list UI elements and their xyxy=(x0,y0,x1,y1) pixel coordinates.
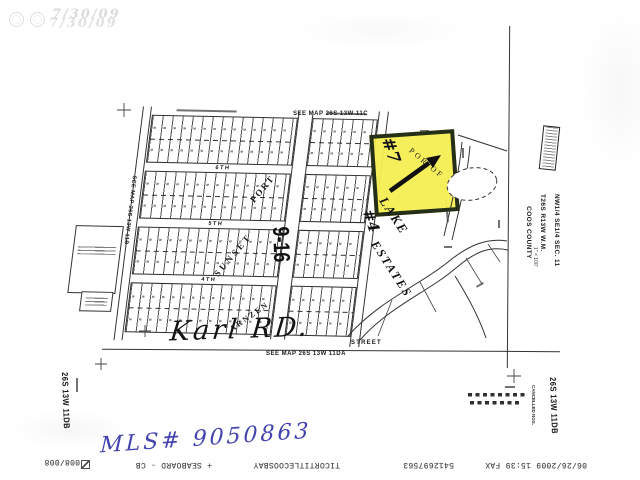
road-number-label: 9-16 xyxy=(267,226,295,263)
see-map-ref-north: SEE MAP 26S 13W 11C xyxy=(293,111,368,117)
sheet-right-border xyxy=(507,26,511,368)
adjacent-parcel-step xyxy=(79,291,114,312)
estates-name-estates: ESTATES xyxy=(367,238,415,300)
curved-road xyxy=(348,240,507,336)
fax-datetime: 06/26/2009 15:39 FAX xyxy=(485,460,587,469)
ghost-date-echo: 7/30/09 xyxy=(49,16,118,31)
legal-line: NW1/4 SE1/4 SEC. 11 T26S R13W W.M. xyxy=(539,194,560,267)
estates-north-boundary xyxy=(458,135,507,151)
recorder-stamp xyxy=(539,125,561,171)
fax-pages-count: 008/008 xyxy=(44,457,80,466)
scanned-plat-map-page: { "stamps": { "ghost_date": "7/30/09" },… xyxy=(0,0,640,480)
illegible-microtext xyxy=(444,246,452,248)
sheet-id-right: 26S 13W 11DB xyxy=(548,377,560,434)
map-scale: 1" = 100' xyxy=(532,247,538,267)
fax-recipient: + SEABOARD - CB xyxy=(135,460,212,469)
estates-road-south xyxy=(455,276,486,338)
adjacent-parcel xyxy=(67,225,124,294)
cancelled-numbers-label: CANCELLED NOS. xyxy=(531,385,536,425)
estates-lot-line xyxy=(420,282,436,312)
handwritten-mls-number: MLS# 9050863 xyxy=(100,419,312,459)
estates-lot-line xyxy=(378,300,392,336)
lot-block xyxy=(292,230,364,279)
fax-footer: 06/26/2009 15:39 FAX 5412697563 TICORTIT… xyxy=(0,456,640,472)
estates-lot-line xyxy=(466,258,482,284)
fax-number: 5412697563 xyxy=(403,460,454,469)
boxed-z-icon xyxy=(81,460,90,469)
stamp-circle-icon xyxy=(30,12,45,27)
illegible-microtext xyxy=(76,378,78,392)
sheet-id-left: 26S 13W 11DB xyxy=(60,372,72,429)
lot-block xyxy=(306,118,378,167)
fax-pages: 008/008 xyxy=(80,458,90,469)
illegible-microtext xyxy=(505,386,515,388)
street-label-bottom: STREET xyxy=(351,340,382,346)
fax-sender: TICORTITLECOOSBAY xyxy=(253,460,340,469)
see-map-ref-south: SEE MAP 26S 13W 11DA xyxy=(266,351,346,357)
cross-marker-icon xyxy=(507,369,521,383)
illegible-microtext xyxy=(498,220,500,228)
estates-lot-line xyxy=(488,244,500,262)
cross-marker-icon xyxy=(95,358,107,370)
lot-block xyxy=(146,115,298,166)
cancelled-numbers-list xyxy=(468,393,526,406)
stamp-circle-icon xyxy=(9,12,24,27)
illegible-microtext xyxy=(476,282,484,287)
illegible-microtext xyxy=(462,148,464,158)
legal-description: NW1/4 SE1/4 SEC. 11 T26S R13W W.M. COOS … xyxy=(521,194,563,271)
handwritten-road-name: Karl RD. xyxy=(168,311,311,347)
illegible-microtext xyxy=(177,109,237,112)
lot-block xyxy=(132,226,284,277)
